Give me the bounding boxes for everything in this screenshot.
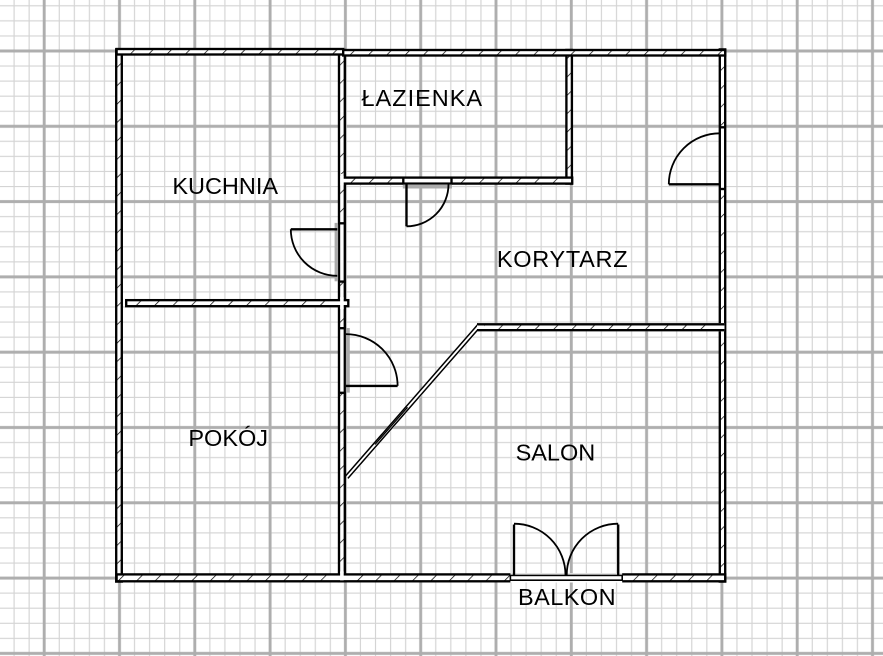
svg-text:KUCHNIA: KUCHNIA	[172, 173, 278, 199]
svg-text:BALKON: BALKON	[518, 584, 616, 610]
svg-text:POKÓJ: POKÓJ	[188, 425, 268, 451]
svg-text:KORYTARZ: KORYTARZ	[497, 246, 628, 272]
svg-text:ŁAZIENKA: ŁAZIENKA	[361, 85, 483, 111]
svg-text:SALON: SALON	[516, 440, 596, 466]
